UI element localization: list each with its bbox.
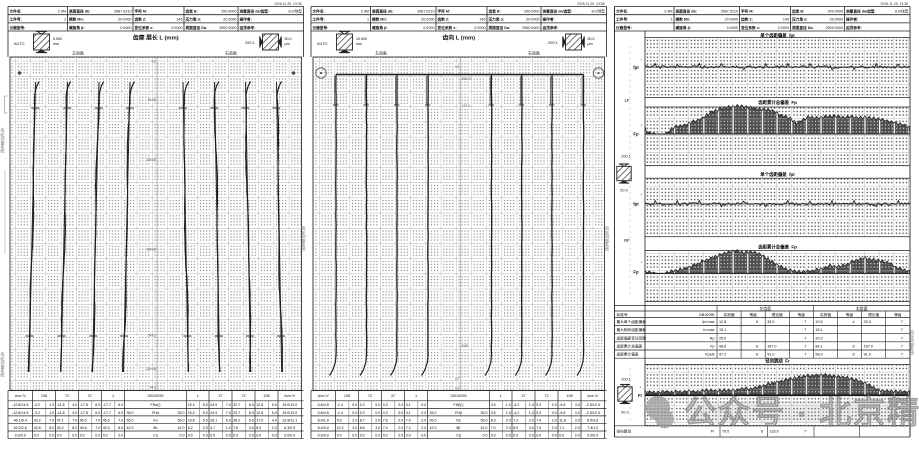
svg-text:模数 Mn:: 模数 Mn: xyxy=(676,17,691,22)
svg-text:0.3: 0.3 xyxy=(360,403,365,407)
svg-text:1.0: 1.0 xyxy=(529,411,534,415)
svg-text:42.0/2.6: 42.0/2.6 xyxy=(14,426,27,430)
svg-text:12.8: 12.8 xyxy=(256,403,263,407)
svg-text:7: 7 xyxy=(804,353,806,357)
svg-text:25.0: 25.0 xyxy=(719,336,726,340)
svg-text:20.0000: 20.0000 xyxy=(223,18,236,22)
svg-text:35.0: 35.0 xyxy=(178,411,185,415)
svg-text:145: 145 xyxy=(479,18,485,22)
svg-text:-2.5/12.9: -2.5/12.9 xyxy=(586,403,600,407)
svg-text:-11.6: -11.6 xyxy=(57,403,65,407)
svg-text:2.9M: 2.9M xyxy=(58,10,66,14)
svg-text:0.0000: 0.0000 xyxy=(778,26,789,30)
svg-text:齿数 Z:: 齿数 Z: xyxy=(135,17,147,22)
svg-text:Ave./V: Ave./V xyxy=(15,394,27,398)
svg-text:6: 6 xyxy=(761,430,763,434)
svg-text:-: - xyxy=(640,404,641,408)
svg-text:5.0: 5.0 xyxy=(272,403,277,407)
svg-text:7: 7 xyxy=(901,353,903,357)
svg-text:6.0: 6.0 xyxy=(249,403,254,407)
svg-text:8.0/球型: 8.0/球型 xyxy=(591,9,605,14)
svg-text:7.0: 7.0 xyxy=(118,418,123,422)
svg-text:6.0: 6.0 xyxy=(226,418,231,422)
svg-text:-9.5: -9.5 xyxy=(559,411,565,415)
svg-text:47.1: 47.1 xyxy=(57,418,64,422)
svg-text:4.0: 4.0 xyxy=(575,411,580,415)
svg-text:0.0: 0.0 xyxy=(421,403,426,407)
svg-text:5: 5 xyxy=(756,320,758,324)
svg-text:0.0: 0.0 xyxy=(57,433,62,437)
svg-text:42.8: 42.8 xyxy=(34,426,41,430)
svg-text:37: 37 xyxy=(88,394,92,398)
svg-text:4.7: 4.7 xyxy=(210,426,215,430)
svg-text:Ave./V: Ave./V xyxy=(587,394,599,398)
svg-text:7.0: 7.0 xyxy=(49,418,54,422)
svg-text:70.0: 70.0 xyxy=(722,430,729,434)
svg-text:螺旋角 β:: 螺旋角 β: xyxy=(69,25,85,30)
svg-text:-12.6/14.5: -12.6/14.5 xyxy=(12,403,28,407)
svg-text:7.6: 7.6 xyxy=(383,418,388,422)
svg-text:仪器型号:: 仪器型号: xyxy=(312,25,329,30)
svg-text:齿轮测量系统: 齿轮测量系统 xyxy=(301,226,307,253)
svg-text:6.0: 6.0 xyxy=(95,403,100,407)
svg-text:mm: mm xyxy=(53,42,59,46)
svg-text:4.0: 4.0 xyxy=(72,411,77,415)
svg-text:8.4/3.0: 8.4/3.0 xyxy=(318,426,329,430)
svg-text:0.0: 0.0 xyxy=(118,433,123,437)
svg-text:5.0: 5.0 xyxy=(203,418,208,422)
svg-text:0.0: 0.0 xyxy=(483,433,488,437)
svg-text:0.0: 0.0 xyxy=(72,433,77,437)
svg-text:齿顶参考:: 齿顶参考: xyxy=(846,25,862,30)
svg-text:8.0: 8.0 xyxy=(513,426,518,430)
svg-text:19.8: 19.8 xyxy=(188,418,195,422)
svg-text:3.5: 3.5 xyxy=(491,411,496,415)
svg-text:0.0: 0.0 xyxy=(375,403,380,407)
svg-text:7.2: 7.2 xyxy=(513,418,518,422)
svg-text:齿顶参考:: 齿顶参考: xyxy=(240,25,256,30)
svg-text:0.0/0.0: 0.0/0.0 xyxy=(284,433,295,437)
svg-text:-17.7: -17.7 xyxy=(103,403,111,407)
svg-text:0.0: 0.0 xyxy=(256,433,261,437)
svg-text:基圆直径 db:: 基圆直径 db: xyxy=(68,9,91,14)
svg-text:145: 145 xyxy=(783,18,789,22)
svg-text:螺旋角 β:: 螺旋角 β: xyxy=(676,25,692,30)
svg-text:2900.0000: 2900.0000 xyxy=(826,26,843,30)
svg-text:实测值: 实测值 xyxy=(820,312,831,317)
svg-text:2.0: 2.0 xyxy=(203,426,208,430)
svg-text:-: - xyxy=(641,280,642,284)
svg-text:6.2: 6.2 xyxy=(188,426,193,430)
svg-text:Fβ: Fβ xyxy=(456,418,460,422)
svg-text:20.3: 20.3 xyxy=(815,336,822,340)
svg-text:0.0: 0.0 xyxy=(552,433,557,437)
svg-text:7: 7 xyxy=(901,320,903,324)
svg-text:7.0: 7.0 xyxy=(226,403,231,407)
svg-text:FHα(′): FHα(′) xyxy=(151,403,161,407)
svg-text:7: 7 xyxy=(804,344,806,348)
svg-text:0.0: 0.0 xyxy=(536,433,541,437)
svg-text:50.0: 50.0 xyxy=(285,37,292,41)
svg-text:0.0: 0.0 xyxy=(375,433,380,437)
svg-text:133.0: 133.0 xyxy=(769,430,778,434)
svg-text:1: 1 xyxy=(367,18,369,22)
svg-text:6: 6 xyxy=(756,344,758,348)
svg-text:0.0: 0.0 xyxy=(337,433,342,437)
svg-text:2.0: 2.0 xyxy=(552,426,557,430)
svg-text:22.7: 22.7 xyxy=(233,411,240,415)
svg-text:8.0: 8.0 xyxy=(72,426,77,430)
svg-text:50.0: 50.0 xyxy=(621,411,628,415)
svg-text:0.3: 0.3 xyxy=(383,411,388,415)
svg-text:42.0: 42.0 xyxy=(481,426,488,430)
svg-text:测量直径 da/齿型:: 测量直径 da/齿型: xyxy=(846,9,876,14)
svg-text:0.0: 0.0 xyxy=(406,433,411,437)
svg-text:84.1: 84.1 xyxy=(815,344,822,348)
svg-text:6.0: 6.0 xyxy=(95,411,100,415)
svg-text:-1.4: -1.4 xyxy=(337,411,343,415)
svg-text:-3.2: -3.2 xyxy=(34,403,40,407)
svg-text:0.0: 0.0 xyxy=(375,411,380,415)
svg-text:AUTO: AUTO xyxy=(317,42,328,46)
svg-text:Ave./V: Ave./V xyxy=(318,394,330,398)
svg-text:GB10095: GB10095 xyxy=(699,313,715,317)
svg-text:fu max: fu max xyxy=(703,328,714,332)
svg-text:1.0: 1.0 xyxy=(226,426,231,430)
svg-text:变位系数 x:: 变位系数 x: xyxy=(135,25,154,30)
svg-text:+: + xyxy=(641,58,643,62)
svg-text:最大相邻齿距偏差: 最大相邻齿距偏差 xyxy=(617,327,647,332)
svg-text:4.0: 4.0 xyxy=(72,403,77,407)
svg-text:0.0: 0.0 xyxy=(352,403,357,407)
svg-text:46.5: 46.5 xyxy=(80,418,87,422)
svg-text:FHβ(′): FHβ(′) xyxy=(454,403,464,407)
svg-text:仪器型号:: 仪器型号: xyxy=(615,25,632,30)
svg-text:0.3: 0.3 xyxy=(536,411,541,415)
svg-text:7: 7 xyxy=(901,336,903,340)
svg-text:Cα: Cα xyxy=(153,433,158,437)
svg-text:24.9: 24.9 xyxy=(210,403,217,407)
svg-text:6.0: 6.0 xyxy=(249,411,254,415)
svg-text:6.9: 6.9 xyxy=(256,426,261,430)
svg-text:字符 M:: 字符 M: xyxy=(741,9,754,14)
svg-text:42.0: 42.0 xyxy=(103,426,110,430)
svg-text:8.7: 8.7 xyxy=(360,418,365,422)
svg-text:Cβ: Cβ xyxy=(456,433,461,437)
svg-text:45.6: 45.6 xyxy=(103,418,110,422)
svg-text:齿轮测量系统: 齿轮测量系统 xyxy=(909,330,915,357)
svg-text:0.0000: 0.0000 xyxy=(171,26,182,30)
svg-text:20.0000: 20.0000 xyxy=(830,18,843,22)
svg-text:55.0: 55.0 xyxy=(481,418,488,422)
svg-text:11.8: 11.8 xyxy=(559,418,566,422)
svg-text:0.0: 0.0 xyxy=(103,433,108,437)
svg-text:齿廓 展长 L (mm): 齿廓 展长 L (mm) xyxy=(133,34,179,42)
svg-text:54.00: 54.00 xyxy=(148,98,156,102)
svg-text:50.0: 50.0 xyxy=(588,37,595,41)
svg-text:3.0: 3.0 xyxy=(529,426,534,430)
svg-text:0.0: 0.0 xyxy=(352,433,357,437)
svg-text:等级: 等级 xyxy=(798,312,806,317)
svg-text:0.0000: 0.0000 xyxy=(423,26,434,30)
svg-text:35.0: 35.0 xyxy=(430,411,437,415)
svg-text:2.0: 2.0 xyxy=(529,418,534,422)
svg-text:0.0: 0.0 xyxy=(455,387,460,391)
svg-text:齿距累计偏差: 齿距累计偏差 xyxy=(617,352,639,357)
svg-text:42.0: 42.0 xyxy=(127,426,134,430)
svg-text:46.1/6.4: 46.1/6.4 xyxy=(14,418,27,422)
svg-text:2.0: 2.0 xyxy=(398,426,403,430)
svg-text:基圆直径 db:: 基圆直径 db: xyxy=(675,9,698,14)
svg-text:-4.2: -4.2 xyxy=(513,411,519,415)
svg-text:72: 72 xyxy=(65,394,69,398)
svg-text:7.1: 7.1 xyxy=(559,426,564,430)
svg-text:FHβ: FHβ xyxy=(455,411,462,415)
svg-text:7: 7 xyxy=(901,344,903,348)
svg-text:径向跳动: 径向跳动 xyxy=(617,429,632,434)
svg-text:2026-11-25 13:38: 2026-11-25 13:38 xyxy=(881,2,909,6)
svg-text:43.2: 43.2 xyxy=(34,418,41,422)
svg-text:0.0/0.0: 0.0/0.0 xyxy=(318,433,329,437)
svg-text:周围直径 Da:: 周围直径 Da: xyxy=(488,25,511,30)
svg-text:2900.0000: 2900.0000 xyxy=(219,26,236,30)
svg-text:Rp: Rp xyxy=(710,336,715,340)
svg-text:压力角 α:: 压力角 α: xyxy=(489,17,505,22)
svg-text:ffα: ffα xyxy=(153,426,157,430)
svg-text:LF: LF xyxy=(624,98,629,103)
svg-text:齿宽 B:: 齿宽 B: xyxy=(186,9,198,14)
svg-text:-1.4: -1.4 xyxy=(337,403,343,407)
svg-text:-17.6: -17.6 xyxy=(80,411,88,415)
svg-text:72: 72 xyxy=(368,394,372,398)
svg-text:0.0: 0.0 xyxy=(210,433,215,437)
svg-text:-11.6: -11.6 xyxy=(57,411,65,415)
svg-text:1.0: 1.0 xyxy=(529,403,534,407)
svg-text:10.2: 10.2 xyxy=(337,426,344,430)
svg-text:6: 6 xyxy=(852,353,854,357)
svg-text:19.0/12.0: 19.0/12.0 xyxy=(282,403,297,407)
svg-text:螺旋角 β:: 螺旋角 β: xyxy=(372,25,388,30)
svg-text:μm: μm xyxy=(285,42,290,46)
svg-text:2.0: 2.0 xyxy=(455,377,460,381)
svg-text:2.9M: 2.9M xyxy=(361,10,369,14)
svg-text:单个齿距偏差 fpt: 单个齿距偏差 fpt xyxy=(760,32,795,39)
svg-text:-12.6/14.5: -12.6/14.5 xyxy=(12,411,28,415)
svg-text:1.0: 1.0 xyxy=(506,403,511,407)
svg-text:0.0: 0.0 xyxy=(49,433,54,437)
svg-text:测量直径 da/齿型:: 测量直径 da/齿型: xyxy=(240,9,270,14)
svg-text:FHα: FHα xyxy=(152,411,159,415)
svg-text:108: 108 xyxy=(344,394,350,398)
svg-text:0.0000: 0.0000 xyxy=(120,26,131,30)
svg-text:2.0: 2.0 xyxy=(421,418,426,422)
svg-text:4.0: 4.0 xyxy=(272,418,277,422)
svg-text:58.9: 58.9 xyxy=(815,353,822,357)
svg-text:20.0000: 20.0000 xyxy=(526,18,539,22)
svg-text:+: + xyxy=(640,386,642,390)
svg-text:1.0: 1.0 xyxy=(506,411,511,415)
svg-text:操作者:: 操作者: xyxy=(240,17,252,22)
svg-text:7.4: 7.4 xyxy=(383,426,388,430)
svg-text:-: - xyxy=(641,78,642,82)
svg-text:齿轮测量系统: 齿轮测量系统 xyxy=(0,352,6,379)
svg-text:齿向 L (mm): 齿向 L (mm) xyxy=(443,34,476,42)
svg-text:108.00: 108.00 xyxy=(146,158,156,162)
svg-text:4.0: 4.0 xyxy=(575,403,580,407)
svg-text:AUTO: AUTO xyxy=(14,42,25,46)
svg-text:齿轮测量系统: 齿轮测量系统 xyxy=(604,226,610,253)
svg-text:左齿面: 左齿面 xyxy=(375,51,387,56)
svg-text:+: + xyxy=(641,124,643,128)
svg-text:最大单个齿距偏差: 最大单个齿距偏差 xyxy=(617,319,647,324)
svg-text:2.0: 2.0 xyxy=(272,426,277,430)
svg-text:-2.5/12.9: -2.5/12.9 xyxy=(586,411,600,415)
svg-text:右齿面: 右齿面 xyxy=(528,51,540,56)
svg-text:0.0: 0.0 xyxy=(80,433,85,437)
svg-text:7.4: 7.4 xyxy=(536,426,541,430)
svg-text:200:1: 200:1 xyxy=(621,378,631,382)
svg-text:变位系数 x:: 变位系数 x: xyxy=(741,25,760,30)
svg-text:72: 72 xyxy=(241,394,245,398)
svg-text:7.2: 7.2 xyxy=(406,426,411,430)
svg-text:5.0: 5.0 xyxy=(203,403,208,407)
svg-text:20.0000: 20.0000 xyxy=(421,18,434,22)
svg-text:5.0: 5.0 xyxy=(203,411,208,415)
svg-text:15.1: 15.1 xyxy=(719,328,726,332)
svg-text:Ave./V: Ave./V xyxy=(284,394,296,398)
svg-text:周围直径 Da:: 周围直径 Da: xyxy=(185,25,208,30)
svg-text:0.0: 0.0 xyxy=(575,433,580,437)
svg-text:108: 108 xyxy=(566,394,572,398)
svg-text:8.6: 8.6 xyxy=(360,426,365,430)
svg-text:变位系数 x:: 变位系数 x: xyxy=(438,25,457,30)
svg-text:RF: RF xyxy=(624,238,630,243)
svg-text:2.0: 2.0 xyxy=(398,418,403,422)
svg-text:7.4/1.0: 7.4/1.0 xyxy=(587,426,598,430)
svg-text:7.9: 7.9 xyxy=(406,418,411,422)
svg-text:35.0: 35.0 xyxy=(481,411,488,415)
svg-text:0.0: 0.0 xyxy=(152,60,157,64)
svg-text:等级: 等级 xyxy=(894,312,902,317)
svg-text:10.5: 10.5 xyxy=(815,320,822,324)
svg-text:1: 1 xyxy=(670,18,672,22)
svg-text:0.0: 0.0 xyxy=(552,403,557,407)
svg-text:6.0: 6.0 xyxy=(118,403,123,407)
svg-text:径向跳动 Fr: 径向跳动 Fr xyxy=(765,358,790,365)
svg-text:左齿面: 左齿面 xyxy=(760,306,772,311)
svg-text:齿宽 B:: 齿宽 B: xyxy=(489,9,501,14)
svg-text:5.0: 5.0 xyxy=(272,411,277,415)
svg-text:3.00: 3.00 xyxy=(462,344,468,348)
svg-text:3.0: 3.0 xyxy=(375,426,380,430)
svg-text:33.0: 33.0 xyxy=(767,320,774,324)
svg-text:15.1: 15.1 xyxy=(815,328,822,332)
svg-text:-: - xyxy=(641,142,642,146)
svg-text:字符 M:: 字符 M: xyxy=(135,9,148,14)
svg-text:3.1: 3.1 xyxy=(406,403,411,407)
svg-text:0.0: 0.0 xyxy=(491,433,496,437)
svg-text:2.0: 2.0 xyxy=(506,418,511,422)
svg-text:15.4: 15.4 xyxy=(188,411,195,415)
svg-text:0.0000: 0.0000 xyxy=(727,26,738,30)
svg-text:7.0: 7.0 xyxy=(95,418,100,422)
svg-text:8.0: 8.0 xyxy=(49,426,54,430)
svg-text:2.0: 2.0 xyxy=(506,426,511,430)
svg-text:文件名:: 文件名: xyxy=(9,9,22,14)
svg-text:2.0: 2.0 xyxy=(375,418,380,422)
svg-text:0.0: 0.0 xyxy=(398,403,403,407)
svg-text:齿距累计总偏差 Fp: 齿距累计总偏差 Fp xyxy=(758,99,797,106)
svg-text:左齿面: 左齿面 xyxy=(72,51,84,56)
svg-text:9.5: 9.5 xyxy=(337,418,342,422)
svg-text:7: 7 xyxy=(901,328,903,332)
svg-text:200:1: 200:1 xyxy=(548,41,558,45)
svg-text:2.9M: 2.9M xyxy=(664,10,672,14)
svg-text:0.3: 0.3 xyxy=(383,403,388,407)
svg-text:2.0: 2.0 xyxy=(421,426,426,430)
svg-text:压力角 α:: 压力角 α: xyxy=(186,17,202,22)
svg-text:8.0: 8.0 xyxy=(118,426,123,430)
svg-text:压力角 α:: 压力角 α: xyxy=(792,17,808,22)
svg-text:0.0: 0.0 xyxy=(455,65,460,69)
svg-text:19.0/12.0: 19.0/12.0 xyxy=(282,411,297,415)
svg-text:3.0: 3.0 xyxy=(352,426,357,430)
svg-text:mm: mm xyxy=(356,42,362,46)
svg-text:0.0: 0.0 xyxy=(360,433,365,437)
svg-text:0.0: 0.0 xyxy=(421,411,426,415)
svg-text:2026-11-25 13:38: 2026-11-25 13:38 xyxy=(577,2,605,6)
svg-text:7.6: 7.6 xyxy=(233,426,238,430)
svg-text:17.0: 17.0 xyxy=(256,418,263,422)
svg-text:齿宽 B:: 齿宽 B: xyxy=(792,9,804,14)
svg-text:Fp: Fp xyxy=(633,132,639,137)
svg-text:工件号:: 工件号: xyxy=(313,17,325,22)
svg-text:200.0000: 200.0000 xyxy=(524,10,539,14)
svg-text:4: 4 xyxy=(852,320,854,324)
svg-text:工件号:: 工件号: xyxy=(10,17,22,22)
svg-text:0.3: 0.3 xyxy=(360,411,365,415)
svg-text:50.0: 50.0 xyxy=(620,189,627,193)
svg-text:测量直径 da/齿型:: 测量直径 da/齿型: xyxy=(543,9,573,14)
svg-text:1: 1 xyxy=(112,394,114,398)
svg-text:齿距偏差变动范围: 齿距偏差变动范围 xyxy=(617,335,647,340)
svg-text:3.5: 3.5 xyxy=(491,403,496,407)
svg-text:fpt: fpt xyxy=(633,65,639,70)
svg-text:200.0000: 200.0000 xyxy=(221,10,236,14)
svg-text:-17.6: -17.6 xyxy=(80,403,88,407)
svg-text:98.6: 98.6 xyxy=(719,344,726,348)
svg-text:200.00: 200.00 xyxy=(462,77,472,81)
svg-text:周围直径 Da:: 周围直径 Da: xyxy=(791,25,814,30)
svg-text:右齿面: 右齿面 xyxy=(856,306,868,311)
svg-text:7.0: 7.0 xyxy=(491,426,496,430)
svg-text:-4.2: -4.2 xyxy=(513,403,519,407)
svg-text:齿数 Z:: 齿数 Z: xyxy=(438,17,450,22)
svg-text:理论值: 理论值 xyxy=(868,312,879,317)
svg-text:2687.5210: 2687.5210 xyxy=(417,10,434,14)
svg-text:7: 7 xyxy=(804,328,806,332)
svg-text:工件号:: 工件号: xyxy=(616,17,628,22)
svg-text:Fr: Fr xyxy=(638,393,643,398)
svg-text:0.0: 0.0 xyxy=(552,411,557,415)
svg-text:24.9: 24.9 xyxy=(210,411,217,415)
svg-text:8.0/球型: 8.0/球型 xyxy=(895,9,909,14)
svg-text:12.8: 12.8 xyxy=(719,320,726,324)
svg-text:55.0: 55.0 xyxy=(127,418,134,422)
svg-text:0.0: 0.0 xyxy=(506,433,511,437)
svg-text:55.0: 55.0 xyxy=(178,418,185,422)
svg-text:-9.5: -9.5 xyxy=(559,403,565,407)
